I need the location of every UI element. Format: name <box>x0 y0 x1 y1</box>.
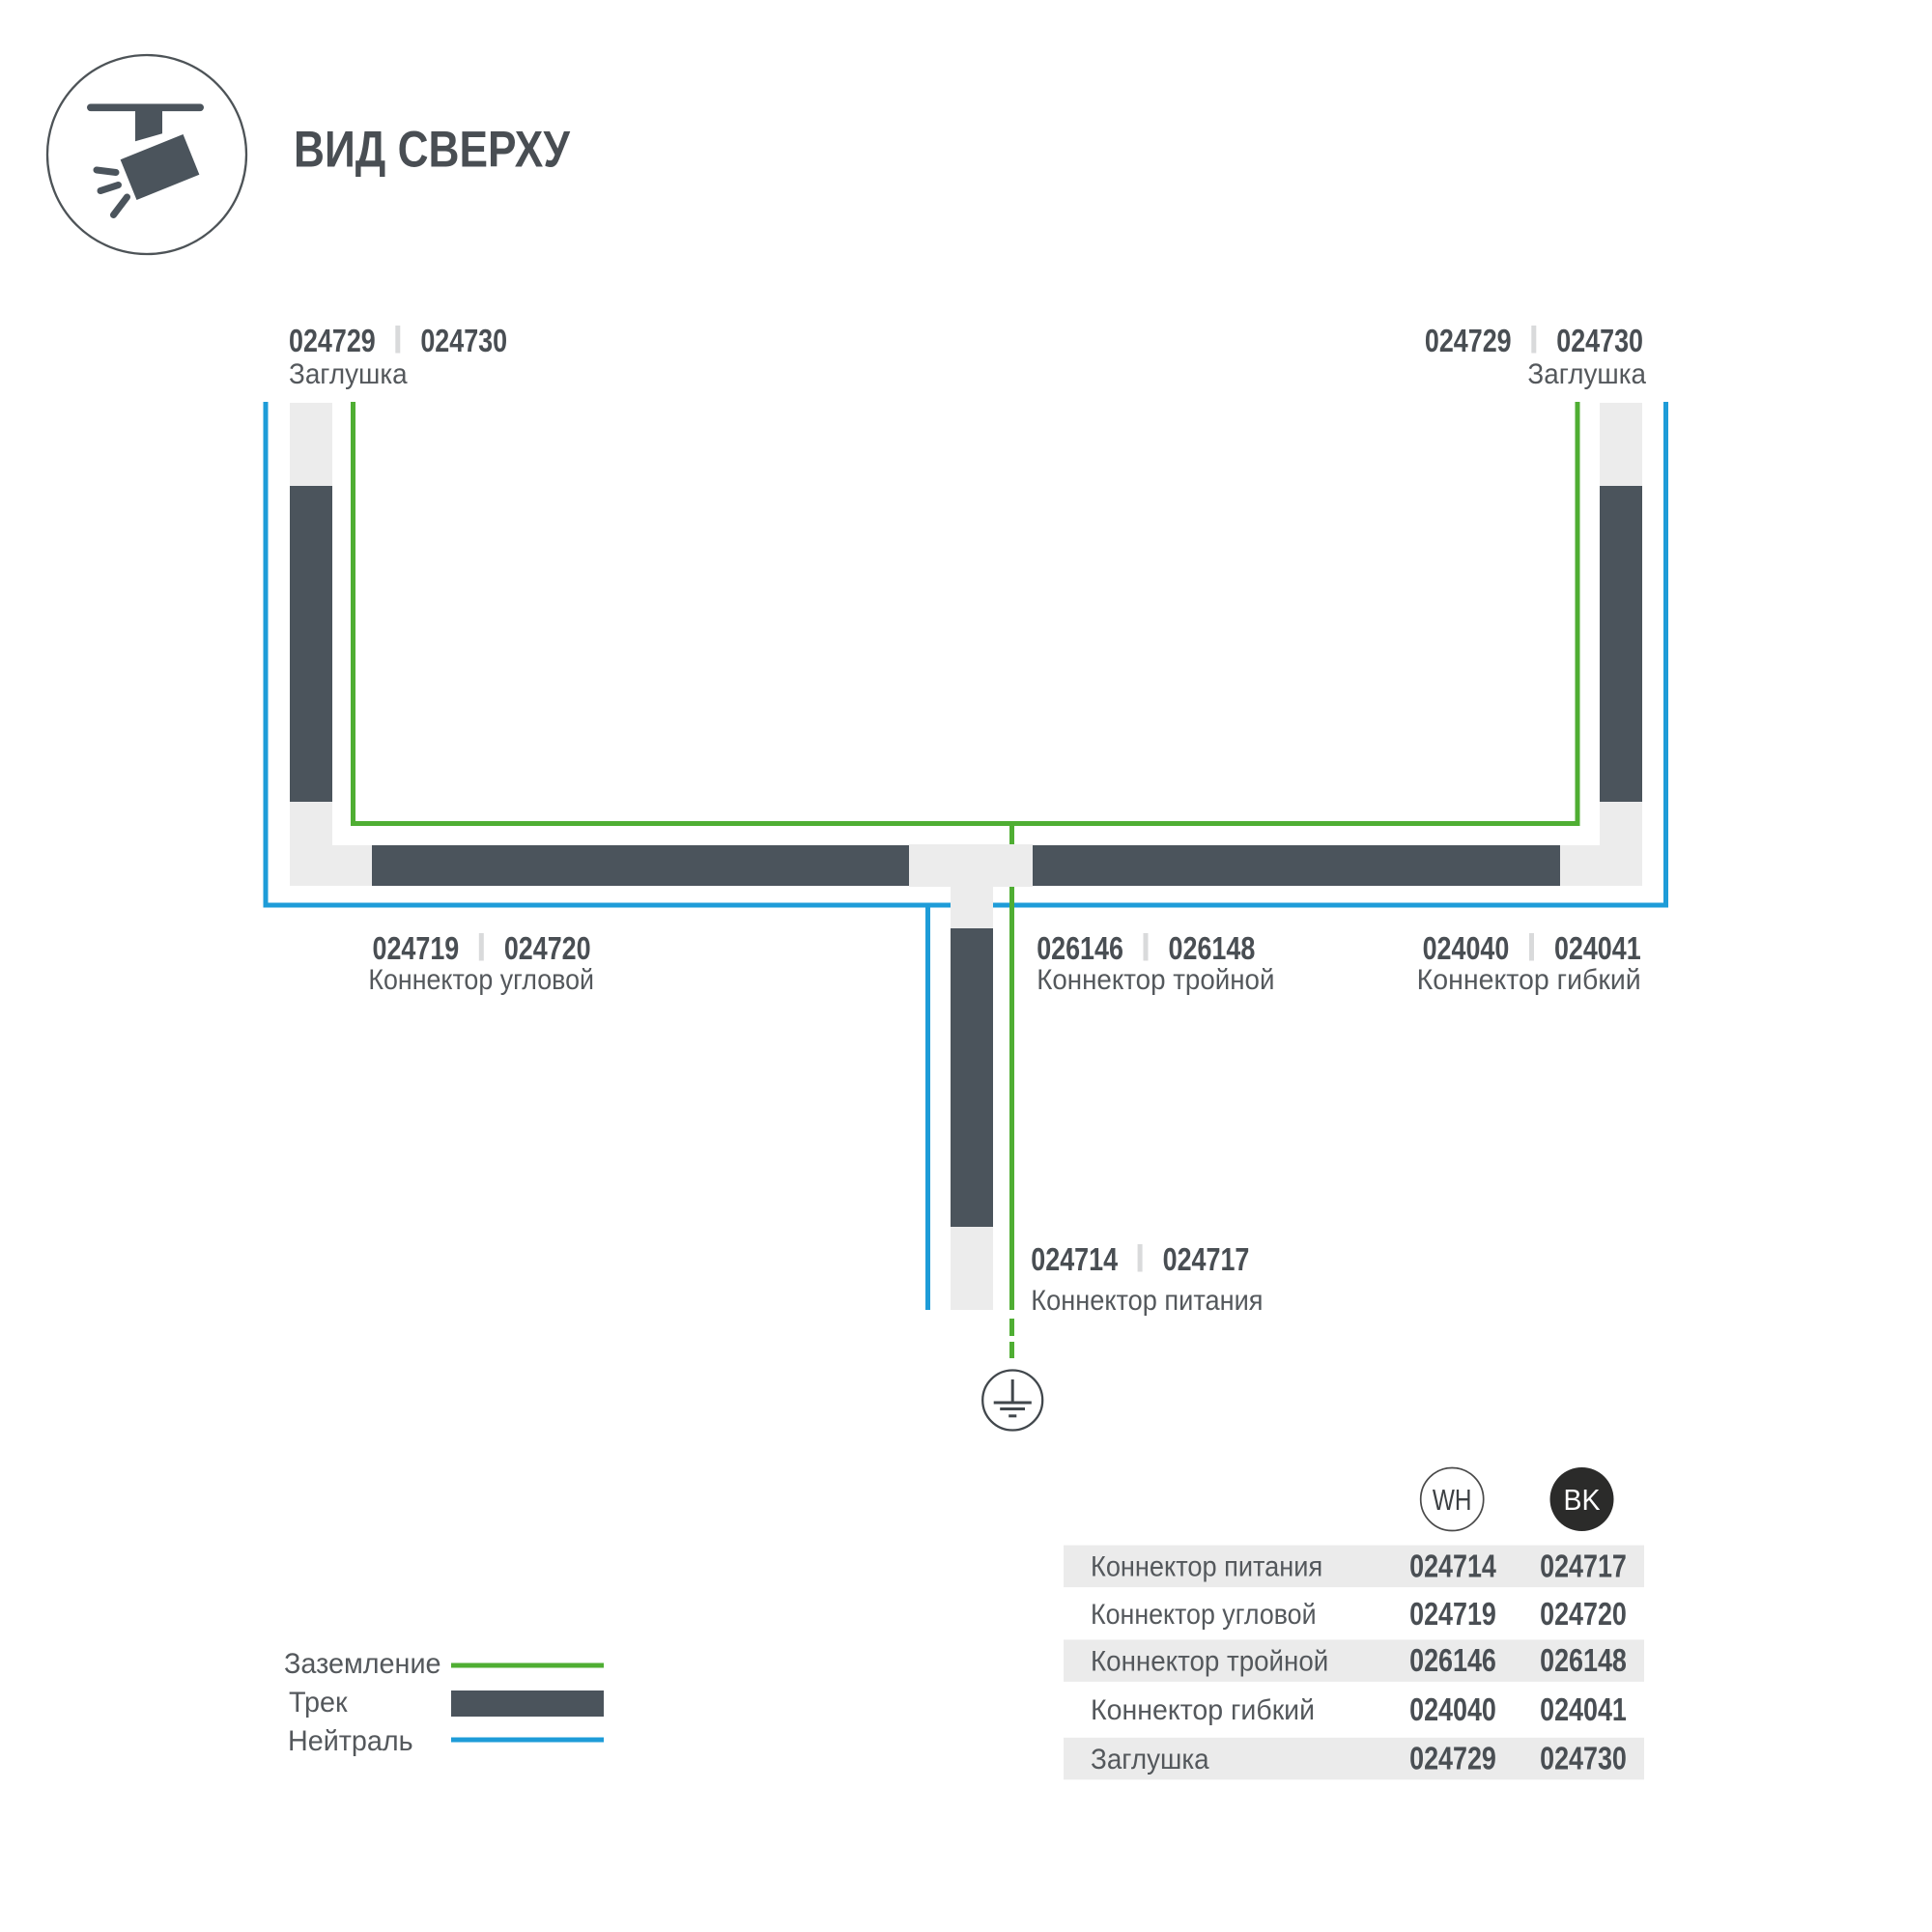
svg-text:Коннектор питания: Коннектор питания <box>1091 1550 1322 1583</box>
svg-text:024729: 024729 <box>1425 324 1512 358</box>
svg-text:026148: 026148 <box>1169 931 1256 966</box>
svg-text:Коннектор угловой: Коннектор угловой <box>368 964 594 997</box>
svg-text:Коннектор питания: Коннектор питания <box>1031 1285 1263 1318</box>
svg-text:Заглушка: Заглушка <box>289 358 408 390</box>
svg-text:WH: WH <box>1433 1483 1472 1516</box>
svg-text:024729: 024729 <box>1409 1742 1496 1776</box>
svg-text:024714: 024714 <box>1031 1242 1118 1277</box>
svg-text:Коннектор угловой: Коннектор угловой <box>1091 1599 1317 1632</box>
svg-text:024730: 024730 <box>1540 1742 1627 1776</box>
svg-text:024719: 024719 <box>1409 1597 1496 1632</box>
svg-text:Трек: Трек <box>289 1686 348 1719</box>
svg-text:024041: 024041 <box>1554 931 1641 966</box>
svg-text:Заземление: Заземление <box>284 1647 441 1680</box>
svg-text:024717: 024717 <box>1163 1242 1250 1277</box>
svg-text:026148: 026148 <box>1540 1644 1627 1679</box>
svg-text:024719: 024719 <box>373 931 460 966</box>
svg-text:024730: 024730 <box>420 324 507 358</box>
svg-text:Коннектор тройной: Коннектор тройной <box>1037 964 1274 996</box>
svg-text:024729: 024729 <box>289 324 376 358</box>
svg-text:024720: 024720 <box>504 931 591 966</box>
svg-text:024040: 024040 <box>1423 931 1510 966</box>
svg-text:BK: BK <box>1563 1484 1600 1517</box>
svg-text:024041: 024041 <box>1540 1692 1627 1727</box>
svg-text:Коннектор гибкий: Коннектор гибкий <box>1091 1694 1315 1726</box>
svg-text:024730: 024730 <box>1556 324 1643 358</box>
svg-text:Коннектор тройной: Коннектор тройной <box>1091 1645 1328 1677</box>
svg-text:024720: 024720 <box>1540 1597 1627 1632</box>
svg-text:026146: 026146 <box>1037 931 1123 966</box>
svg-text:Коннектор гибкий: Коннектор гибкий <box>1417 964 1641 996</box>
svg-text:024714: 024714 <box>1409 1549 1496 1584</box>
svg-text:024040: 024040 <box>1409 1692 1496 1727</box>
svg-text:024717: 024717 <box>1540 1549 1627 1584</box>
svg-text:026146: 026146 <box>1409 1644 1496 1679</box>
svg-text:ВИД СВЕРХУ: ВИД СВЕРХУ <box>294 122 570 179</box>
svg-text:Заглушка: Заглушка <box>1527 358 1646 390</box>
svg-text:Нейтраль: Нейтраль <box>288 1724 413 1757</box>
svg-text:Заглушка: Заглушка <box>1091 1744 1209 1776</box>
